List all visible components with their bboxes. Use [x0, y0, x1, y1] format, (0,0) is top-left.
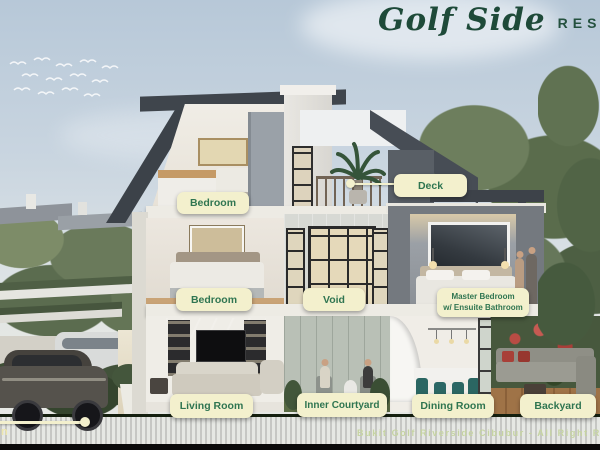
pendant-light	[504, 248, 506, 262]
label-dining-room-text: Dining Room	[420, 400, 485, 412]
label-void-text: Void	[323, 294, 345, 306]
clipped-label-fragment: n	[1, 426, 8, 438]
brand-title: Golf Side RESIDENCE	[378, 2, 600, 38]
pendant-light	[436, 330, 437, 340]
red-cushion	[502, 351, 514, 362]
label-master-line1: Master Bedroom	[451, 292, 514, 302]
label-deck-text: Deck	[418, 180, 443, 192]
sofa-seat	[172, 374, 262, 396]
label-inner-courtyard-text: Inner Courtyard	[304, 400, 379, 411]
bottom-black-bar	[0, 444, 600, 450]
attic-wall-art	[198, 138, 248, 166]
copyright-text: Bukit Golf Riverside Cibubur - All Right…	[357, 428, 600, 438]
chimney	[78, 202, 87, 215]
label-living-room[interactable]: Living Room	[170, 394, 253, 418]
label-master-line2: w/ Ensuite Bathroom	[443, 303, 523, 313]
label-bedroom-upper-text: Bedroom	[190, 197, 236, 209]
left-leader-dot	[80, 417, 90, 427]
car-wheel	[72, 400, 103, 431]
label-living-room-text: Living Room	[180, 400, 244, 412]
brand-caps-text: RESIDENCE	[558, 9, 600, 31]
pendant-light	[451, 330, 452, 340]
label-deck[interactable]: Deck	[394, 174, 467, 197]
side-table	[150, 378, 168, 394]
label-void[interactable]: Void	[303, 288, 365, 311]
label-master-bedroom[interactable]: Master Bedroom w/ Ensuite Bathroom	[437, 288, 529, 317]
foreground-trees-right	[538, 40, 600, 370]
red-cushion	[518, 351, 530, 362]
pillow	[426, 270, 454, 280]
car-highlight	[2, 378, 106, 381]
attic-door-panel	[248, 112, 287, 212]
label-bedroom-middle[interactable]: Bedroom	[176, 288, 252, 311]
label-dining-room[interactable]: Dining Room	[412, 394, 494, 418]
label-bedroom-middle-text: Bedroom	[191, 294, 237, 306]
armchair	[260, 360, 284, 394]
birds-flock-icon	[6, 54, 146, 104]
palm-plant-icon	[328, 136, 388, 206]
label-inner-courtyard[interactable]: Inner Courtyard	[297, 393, 387, 417]
deck-leader-line	[352, 183, 395, 185]
chimney	[26, 194, 36, 209]
label-bedroom-upper[interactable]: Bedroom	[177, 192, 249, 214]
television	[196, 330, 246, 362]
attic-counter	[158, 170, 216, 178]
brand-script-text: Golf Side	[378, 2, 546, 38]
left-leader-line	[0, 421, 85, 424]
brochure-canvas: n Deck Bedroom Bedroom Void Master Bedro…	[0, 0, 600, 450]
label-backyard-text: Backyard	[534, 400, 581, 412]
pendant-light	[432, 248, 434, 262]
white-car-windows	[62, 338, 124, 349]
pillow	[462, 270, 490, 280]
deck-leader-dot	[346, 179, 355, 188]
label-backyard[interactable]: Backyard	[520, 394, 596, 418]
tower-parapet	[280, 85, 336, 95]
pendant-light	[466, 330, 467, 340]
void-window-right	[372, 228, 389, 306]
person-seated	[320, 366, 330, 388]
car-wheel	[12, 400, 43, 431]
